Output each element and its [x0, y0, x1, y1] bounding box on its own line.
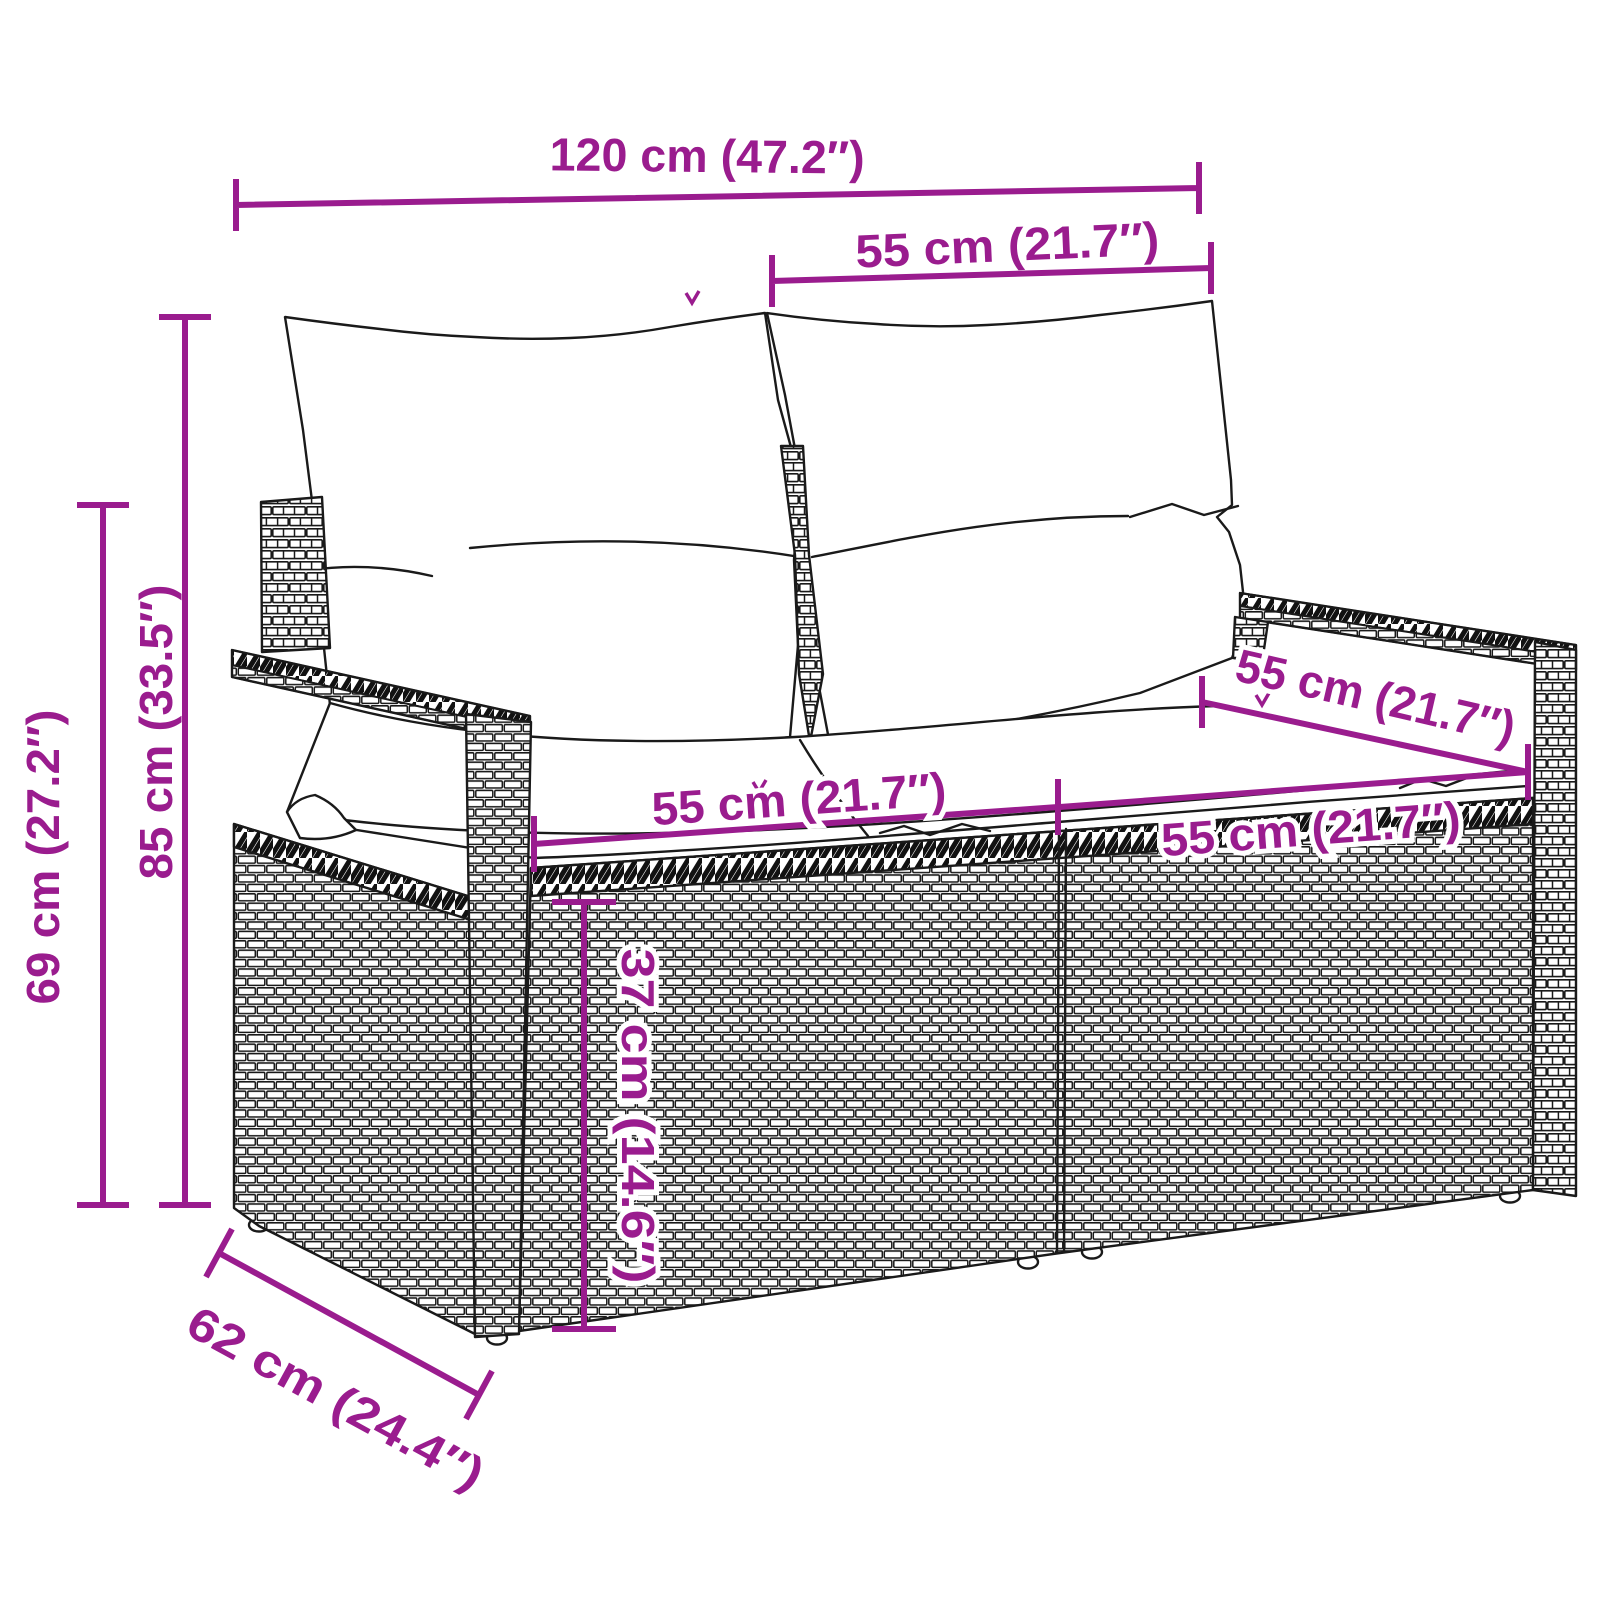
svg-text:69 cm (27.2″): 69 cm (27.2″)	[17, 710, 69, 1005]
svg-text:85 cm (33.5″): 85 cm (33.5″)	[130, 585, 182, 880]
svg-text:37 cm (14.6″): 37 cm (14.6″)	[612, 949, 664, 1284]
svg-text:120 cm (47.2″): 120 cm (47.2″)	[549, 128, 865, 183]
